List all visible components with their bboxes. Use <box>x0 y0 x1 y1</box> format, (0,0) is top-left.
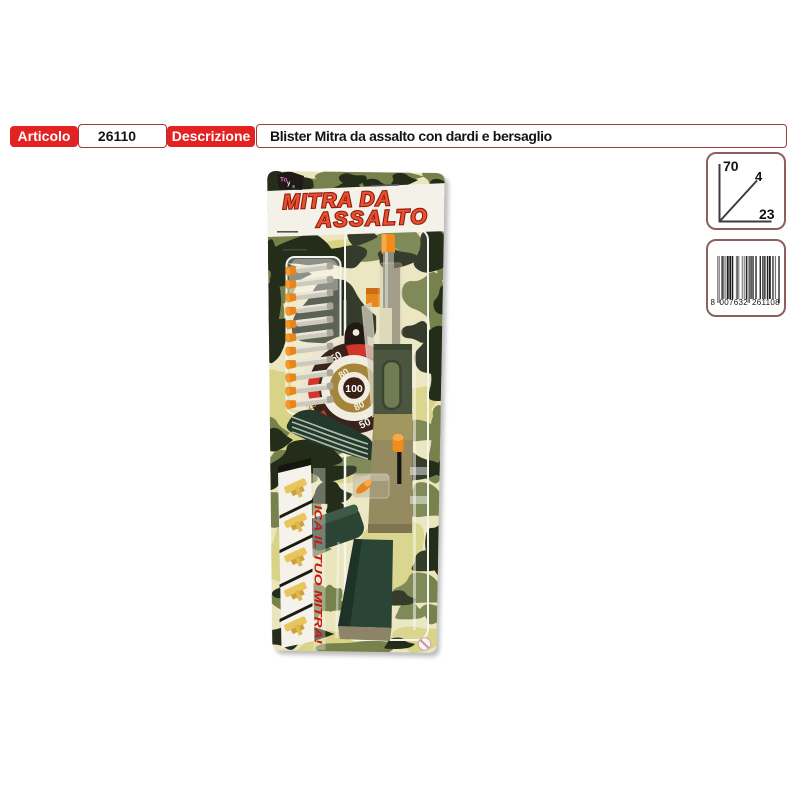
svg-text:007632: 007632 <box>720 298 749 307</box>
svg-text:261108: 261108 <box>752 298 780 307</box>
svg-text:70: 70 <box>723 158 739 174</box>
svg-text:100: 100 <box>345 383 363 395</box>
svg-text:ICA IL TUO MITRA!: ICA IL TUO MITRA! <box>312 505 324 644</box>
svg-text:4: 4 <box>755 169 763 184</box>
svg-text:23: 23 <box>759 206 775 222</box>
svg-text:s: s <box>292 184 295 190</box>
svg-text:8: 8 <box>711 298 716 307</box>
